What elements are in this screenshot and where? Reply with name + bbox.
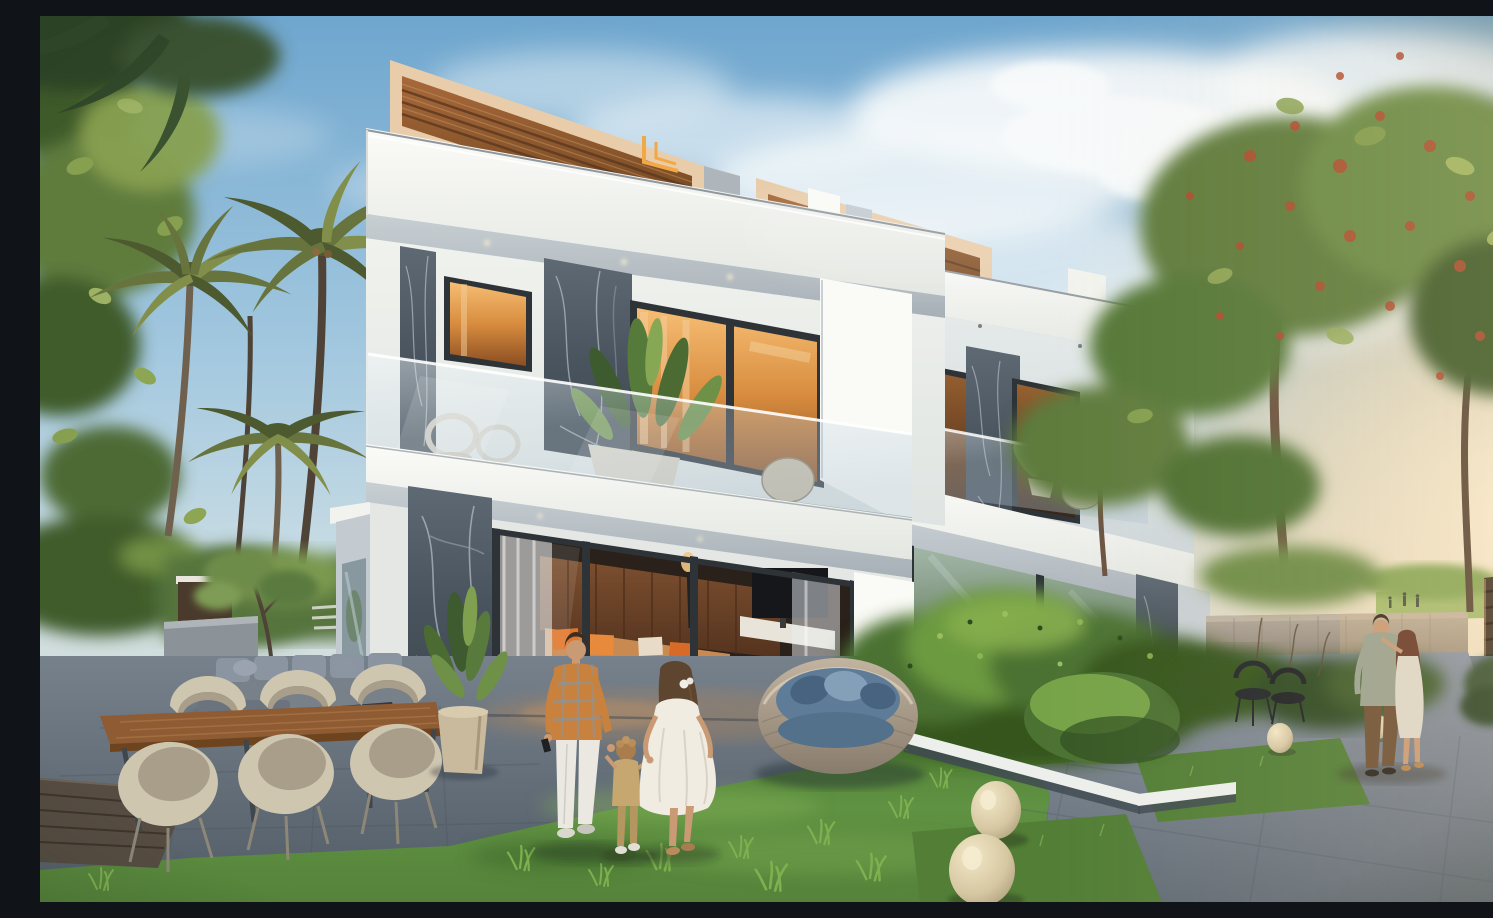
scene-canvas: [40, 16, 1493, 902]
architectural-rendering: Photorealistic architectural rendering a…: [40, 16, 1493, 902]
atmosphere: [40, 16, 1493, 902]
